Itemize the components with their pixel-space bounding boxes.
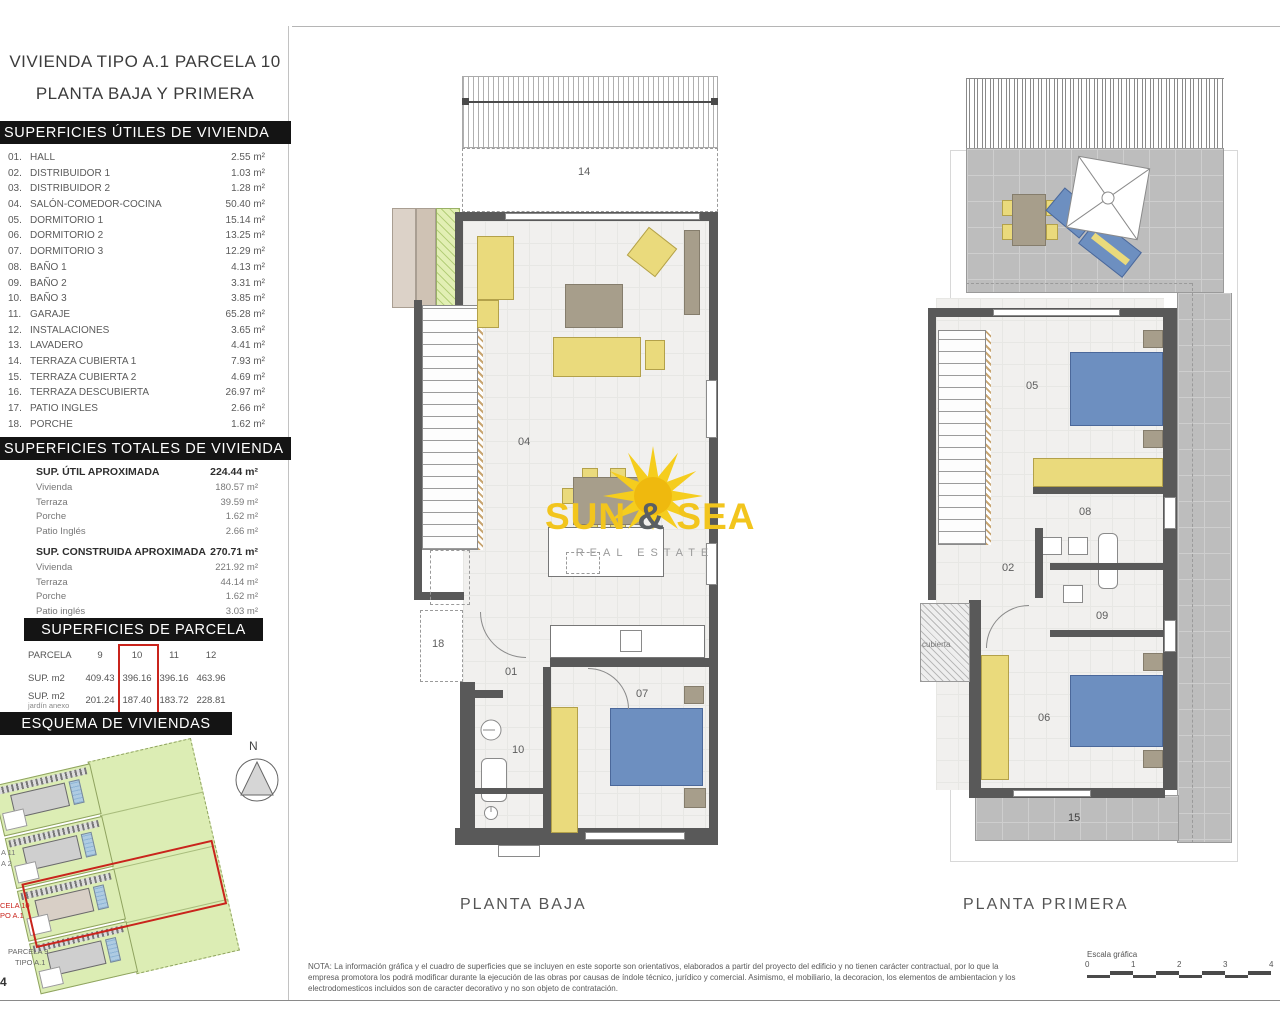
note-line: electrodomesticos incluidos son de carac… bbox=[308, 983, 1066, 994]
scale-tick-1: 1 bbox=[1131, 960, 1135, 969]
terraza-cubierta-14 bbox=[462, 148, 718, 212]
site-label-fragment-parcela11: A 11 bbox=[1, 848, 15, 858]
scale-tick-2: 2 bbox=[1177, 960, 1181, 969]
nightstand bbox=[1143, 330, 1163, 348]
room-area-list: 01.HALL2.55 m² 02.DISTRIBUIDOR 11.03 m² … bbox=[0, 150, 287, 432]
scale-bar bbox=[1087, 971, 1271, 978]
room-number-08: 08 bbox=[1079, 506, 1091, 518]
planta-primera-caption: PLANTA PRIMERA bbox=[963, 896, 1129, 914]
terrace-dashed-line bbox=[1192, 283, 1193, 843]
bathtub bbox=[481, 758, 507, 802]
room-row: 11.GARAJE65.28 m² bbox=[8, 307, 265, 323]
room-row: 08.BAÑO 14.13 m² bbox=[8, 260, 265, 276]
room-row: 17.PATIO INGLES2.66 m² bbox=[8, 401, 265, 417]
site-patio bbox=[2, 808, 27, 830]
room-number-01: 01 bbox=[505, 666, 517, 678]
room-row: 10.BAÑO 33.85 m² bbox=[8, 291, 265, 307]
room-row: 16.TERRAZA DESCUBIERTA26.97 m² bbox=[8, 385, 265, 401]
wrap-terrace-right bbox=[1177, 293, 1232, 843]
plan-sheet: VIVIENDA TIPO A.1 PARCELA 10 PLANTA BAJA… bbox=[0, 0, 1280, 1024]
bottom-frame-line bbox=[0, 1000, 1280, 1001]
site-label-parcela9-line2: TIPO A.1 bbox=[15, 958, 45, 968]
terrace-door bbox=[1164, 497, 1176, 529]
bed-dormitorio3 bbox=[610, 708, 703, 786]
nightstand bbox=[1143, 750, 1163, 768]
nightstand bbox=[1143, 430, 1163, 448]
watermark-subtitle: REAL ESTATE bbox=[545, 547, 745, 559]
wall-interior bbox=[1033, 487, 1163, 494]
shade-sail bbox=[1062, 152, 1154, 244]
staircase bbox=[938, 330, 986, 545]
sofa-long bbox=[553, 337, 641, 377]
room-number-02: 02 bbox=[1002, 562, 1014, 574]
wall-left-lower bbox=[460, 682, 475, 845]
pergola-beam bbox=[462, 101, 718, 103]
room-number-04: 04 bbox=[518, 436, 530, 448]
scale-bar-label: Escala gráfica bbox=[1087, 950, 1137, 959]
site-patio bbox=[38, 966, 63, 988]
note-line: NOTA: La información gráfica y el cuadro… bbox=[308, 961, 1066, 972]
staircase bbox=[422, 305, 478, 550]
site-pool bbox=[81, 832, 97, 858]
window-bottom bbox=[585, 832, 685, 840]
sheet-title-line2: PLANTA BAJA Y PRIMERA bbox=[0, 84, 290, 104]
annex-band bbox=[392, 208, 416, 308]
scale-bar-row bbox=[1087, 975, 1271, 979]
room-row: 06.DORMITORIO 213.25 m² bbox=[8, 228, 265, 244]
pergola-hatch bbox=[462, 76, 718, 148]
scale-tick-3: 3 bbox=[1223, 960, 1227, 969]
page-number: 4 bbox=[0, 975, 7, 989]
site-label-parcela10-line2: PO A.1 bbox=[0, 911, 24, 921]
section-header-superficies-utiles: SUPERFICIES ÚTILES DE VIVIENDA bbox=[0, 121, 291, 144]
compass-north-label: N bbox=[249, 739, 258, 753]
highlighted-parcela-column bbox=[118, 644, 159, 715]
terrace-chair bbox=[1046, 224, 1058, 240]
terrace-table bbox=[1012, 194, 1046, 246]
washbasin bbox=[1042, 537, 1062, 555]
room-row: 04.SALÓN-COMEDOR-COCINA50.40 m² bbox=[8, 197, 265, 213]
entry-step bbox=[498, 845, 540, 857]
wardrobe bbox=[1033, 458, 1163, 487]
coffee-table bbox=[565, 284, 623, 328]
wardrobe bbox=[981, 655, 1009, 780]
room-row: 14.TERRAZA CUBIERTA 17.93 m² bbox=[8, 354, 265, 370]
wall-left bbox=[928, 308, 936, 600]
wall-left bbox=[455, 212, 463, 312]
section-header-esquema: ESQUEMA DE VIVIENDAS bbox=[0, 712, 232, 735]
scale-tick-4: 4 bbox=[1269, 960, 1273, 969]
insulation-hatch bbox=[986, 330, 991, 545]
note-line: empresa promotora los podrá modificar du… bbox=[308, 972, 1066, 983]
pergola-post bbox=[711, 98, 718, 105]
disclaimer-note: NOTA: La información gráfica y el cuadro… bbox=[308, 961, 1066, 994]
watermark-title: SUN & SEA bbox=[545, 496, 745, 538]
cubierta-label: cubierta bbox=[922, 640, 950, 649]
wardrobe bbox=[551, 707, 578, 833]
room-row: 01.HALL2.55 m² bbox=[8, 150, 265, 166]
bed-dormitorio2 bbox=[1070, 675, 1163, 747]
scale-tick-0: 0 bbox=[1085, 960, 1089, 969]
tv-unit bbox=[684, 230, 700, 315]
wall-stair-outer bbox=[414, 300, 422, 600]
sofa-chaise bbox=[477, 300, 499, 328]
room-row: 15.TERRAZA CUBIERTA 24.69 m² bbox=[8, 370, 265, 386]
terrace-dashed-line bbox=[966, 283, 1192, 284]
window-top bbox=[505, 213, 700, 220]
bed-dormitorio1 bbox=[1070, 352, 1163, 426]
totales-util-block: SUP. ÚTIL APROXIMADA224.44 m² Vivienda18… bbox=[36, 466, 258, 540]
room-row: 12.INSTALACIONES3.65 m² bbox=[8, 323, 265, 339]
wall-interior bbox=[1050, 630, 1163, 637]
pergola-post bbox=[462, 98, 469, 105]
washbasin bbox=[1068, 537, 1088, 555]
room-row: 18.PORCHE1.62 m² bbox=[8, 417, 265, 433]
site-pool bbox=[105, 937, 121, 963]
bathtub bbox=[1098, 533, 1118, 589]
room-number-07: 07 bbox=[636, 688, 648, 700]
room-row: 13.LAVADERO4.41 m² bbox=[8, 338, 265, 354]
section-header-superficies-parcela: SUPERFICIES DE PARCELA bbox=[24, 618, 263, 641]
panel-divider-line bbox=[288, 26, 289, 1000]
room-number-14: 14 bbox=[578, 166, 590, 178]
terrace-door bbox=[1164, 620, 1176, 652]
wall-interior bbox=[1035, 528, 1043, 598]
site-pool bbox=[69, 779, 85, 805]
side-table bbox=[645, 340, 665, 370]
stair-dashed-flight bbox=[430, 550, 470, 605]
slat-pergola bbox=[966, 78, 1224, 150]
toilet-icon bbox=[483, 805, 499, 821]
planta-baja-caption: PLANTA BAJA bbox=[460, 896, 587, 914]
cooktop bbox=[620, 630, 642, 652]
totales-construida-block: SUP. CONSTRUIDA APROXIMADA270.71 m² Vivi… bbox=[36, 546, 258, 620]
window-right bbox=[706, 380, 717, 438]
room-number-18: 18 bbox=[432, 638, 444, 650]
wall-right bbox=[1163, 308, 1177, 790]
room-number-06: 06 bbox=[1038, 712, 1050, 724]
site-label-parcela10-line1: CELA 10 bbox=[0, 901, 30, 911]
room-row: 02.DISTRIBUIDOR 11.03 m² bbox=[8, 166, 265, 182]
site-label-fragment-tipoa2: A 2 bbox=[1, 859, 12, 869]
sheet-title-line1: VIVIENDA TIPO A.1 PARCELA 10 bbox=[0, 52, 290, 72]
room-number-10: 10 bbox=[512, 744, 524, 756]
room-number-15: 15 bbox=[1068, 812, 1080, 824]
room-number-05: 05 bbox=[1026, 380, 1038, 392]
washbasin bbox=[1063, 585, 1083, 603]
room-row: 05.DORMITORIO 115.14 m² bbox=[8, 213, 265, 229]
annex-band bbox=[416, 208, 436, 308]
nightstand bbox=[1143, 653, 1163, 671]
window-bottom bbox=[1013, 790, 1091, 797]
nightstand bbox=[684, 686, 704, 704]
sink-icon bbox=[479, 718, 503, 742]
compass-icon bbox=[234, 757, 280, 803]
section-header-superficies-totales: SUPERFICIES TOTALES DE VIVIENDA bbox=[0, 437, 291, 460]
room-row: 03.DISTRIBUIDOR 21.28 m² bbox=[8, 181, 265, 197]
wall-left-lower bbox=[969, 600, 981, 798]
nightstand bbox=[684, 788, 706, 808]
wall-bath-divider bbox=[475, 788, 545, 794]
site-label-parcela9-line1: PARCELA 9 bbox=[8, 947, 48, 957]
wall-interior bbox=[1050, 563, 1163, 570]
insulation-hatch bbox=[478, 305, 483, 550]
wall-kitchen bbox=[550, 658, 709, 667]
wall-interior bbox=[543, 667, 551, 832]
top-frame-line bbox=[292, 26, 1280, 27]
room-row: 09.BAÑO 23.31 m² bbox=[8, 276, 265, 292]
room-number-09: 09 bbox=[1096, 610, 1108, 622]
room-row: 07.DORMITORIO 312.29 m² bbox=[8, 244, 265, 260]
window-top bbox=[993, 309, 1120, 316]
wall-interior bbox=[463, 690, 503, 698]
sofa bbox=[477, 236, 514, 300]
